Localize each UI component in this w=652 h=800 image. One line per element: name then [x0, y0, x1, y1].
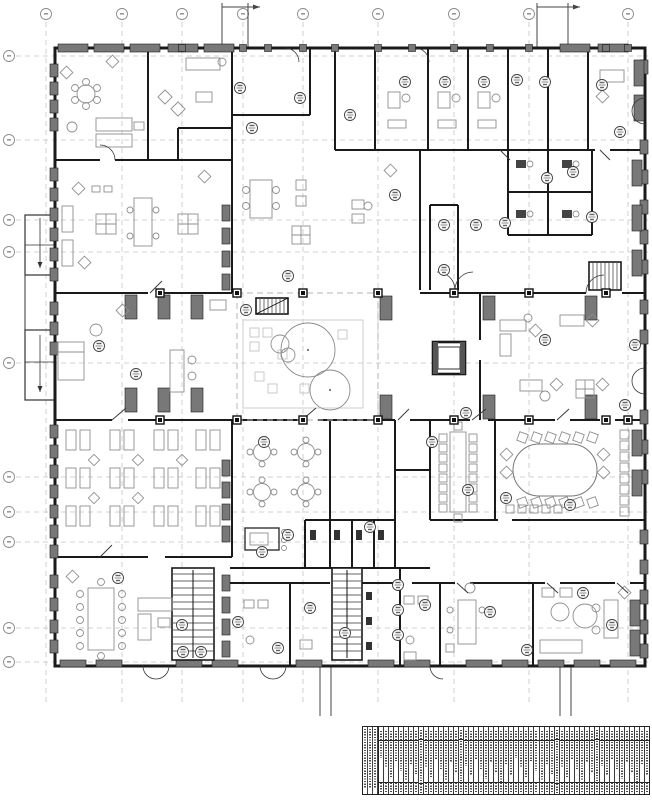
floor-plan-sheet [0, 0, 652, 800]
stairs [172, 262, 621, 660]
table-data-columns [379, 727, 649, 794]
structural-grid [4, 9, 649, 703]
floor-plan-drawing [0, 0, 652, 800]
room-schedule-table [362, 726, 650, 795]
section-markers [25, 3, 580, 716]
table-column [645, 727, 649, 794]
table-row-label-columns [363, 727, 379, 794]
structural-columns [156, 289, 632, 424]
elevator-shaft [433, 342, 465, 374]
